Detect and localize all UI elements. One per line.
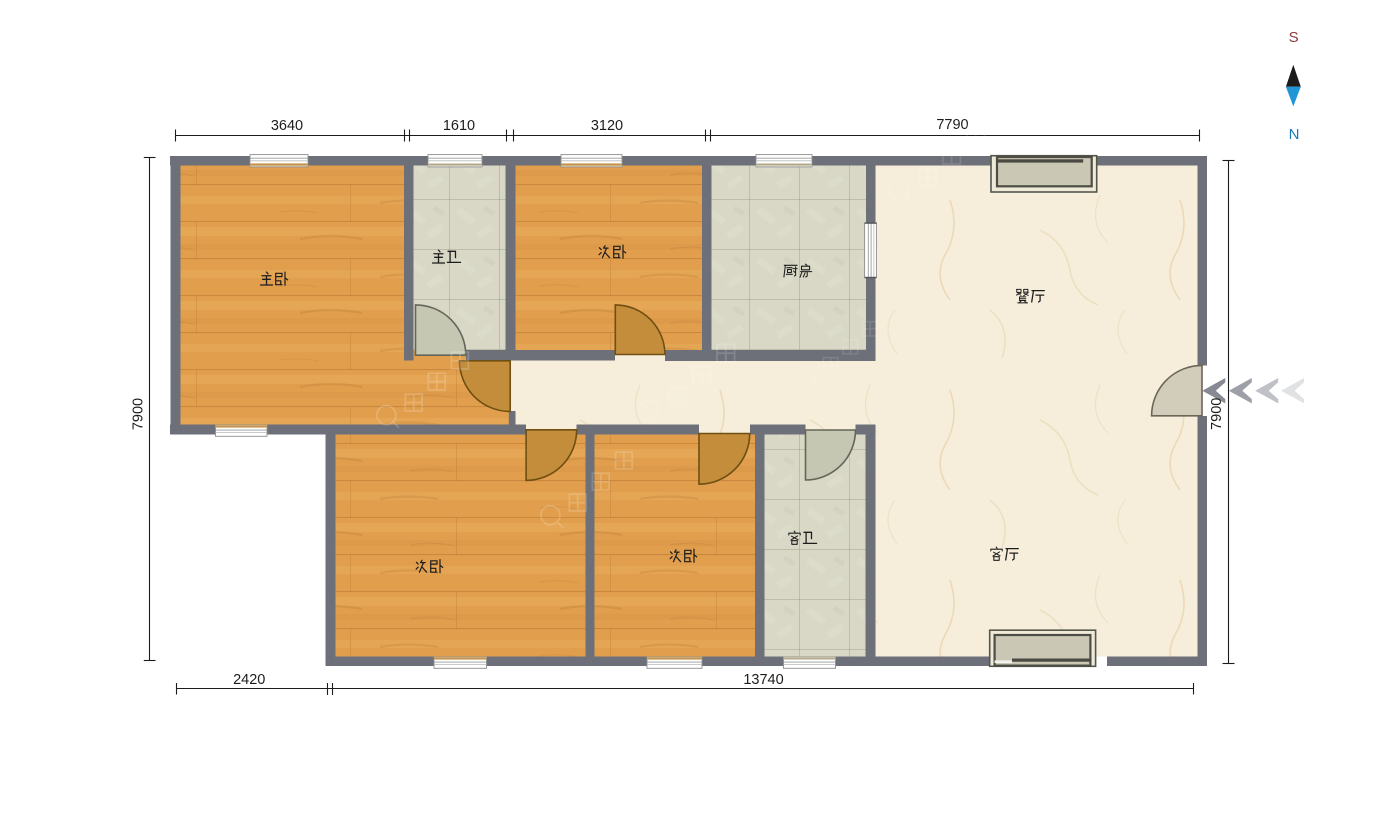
svg-text:2420: 2420 bbox=[233, 672, 265, 688]
svg-text:3120: 3120 bbox=[591, 118, 623, 134]
svg-text:7790: 7790 bbox=[936, 117, 968, 133]
svg-text:1610: 1610 bbox=[443, 118, 475, 134]
svg-text:7900: 7900 bbox=[131, 398, 147, 430]
svg-text:13740: 13740 bbox=[743, 672, 783, 688]
svg-text:N: N bbox=[1289, 126, 1300, 143]
svg-text:3640: 3640 bbox=[271, 118, 303, 134]
svg-text:S: S bbox=[1289, 29, 1299, 46]
svg-text:7900: 7900 bbox=[1209, 398, 1225, 430]
